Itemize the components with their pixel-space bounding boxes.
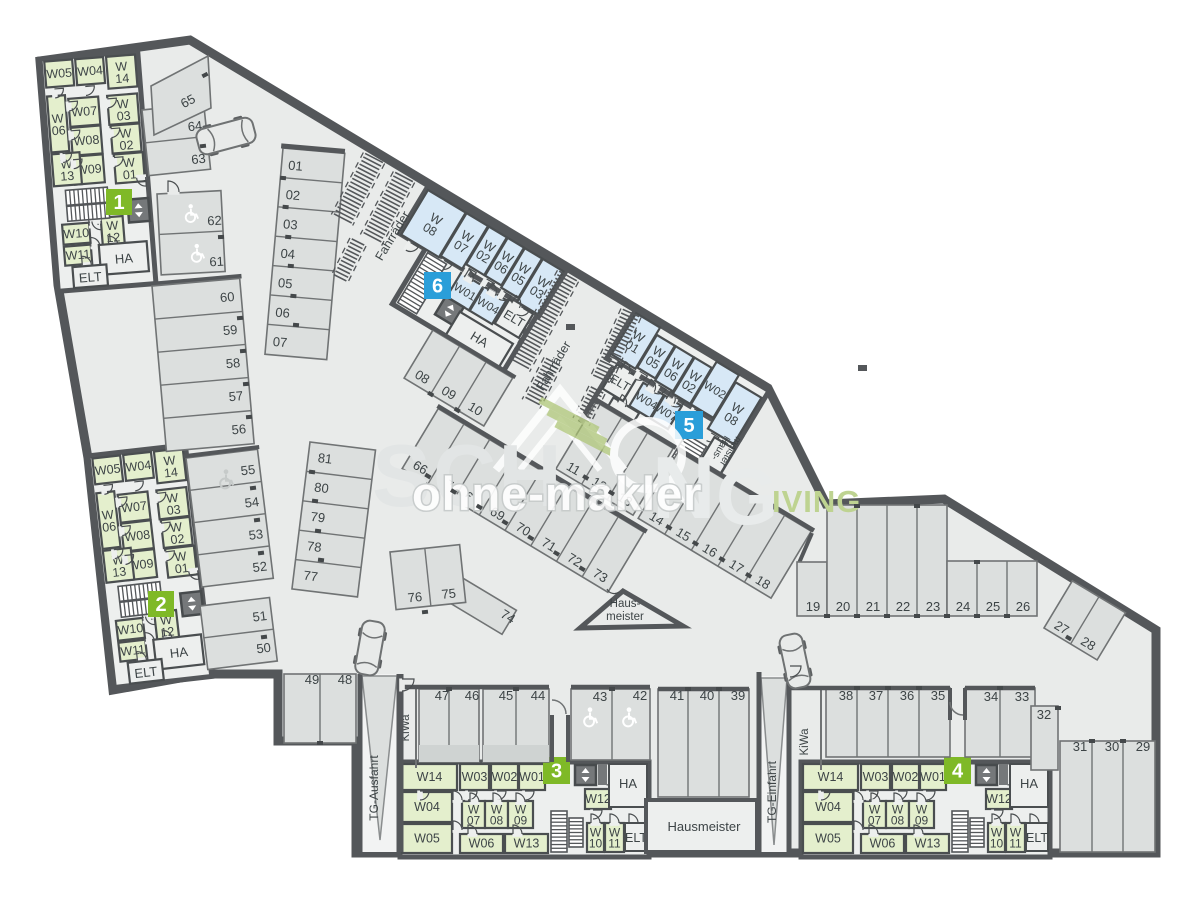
svg-text:W08: W08	[73, 133, 100, 149]
svg-text:HA: HA	[169, 644, 189, 661]
svg-text:52: 52	[252, 558, 268, 575]
svg-text:75: 75	[441, 585, 457, 601]
svg-text:22: 22	[896, 599, 910, 614]
svg-text:W02: W02	[492, 770, 518, 784]
svg-text:14: 14	[115, 71, 130, 86]
svg-text:57: 57	[228, 388, 244, 404]
svg-text:46: 46	[465, 688, 479, 703]
svg-text:45: 45	[499, 688, 513, 703]
svg-text:5: 5	[683, 415, 694, 437]
svg-text:1: 1	[113, 192, 124, 214]
svg-text:81: 81	[317, 450, 333, 467]
svg-text:03: 03	[116, 109, 131, 124]
svg-text:W13: W13	[514, 837, 540, 851]
svg-text:W11: W11	[65, 247, 91, 263]
svg-text:43: 43	[593, 689, 607, 704]
svg-text:Haus-: Haus-	[610, 598, 641, 610]
svg-text:W10: W10	[63, 226, 90, 242]
svg-text:61: 61	[209, 254, 224, 270]
svg-text:20: 20	[836, 599, 850, 614]
svg-text:W05: W05	[94, 461, 121, 478]
svg-text:3: 3	[551, 761, 562, 783]
svg-text:W13: W13	[915, 837, 941, 851]
svg-text:59: 59	[222, 322, 238, 338]
svg-text:31: 31	[1073, 739, 1087, 754]
svg-text:10: 10	[589, 837, 603, 851]
svg-text:14: 14	[163, 465, 178, 480]
svg-text:W03: W03	[863, 770, 889, 784]
svg-text:10: 10	[990, 837, 1004, 851]
svg-text:24: 24	[956, 599, 970, 614]
svg-text:54: 54	[244, 494, 260, 511]
svg-text:03: 03	[283, 216, 299, 232]
svg-text:01: 01	[122, 167, 137, 182]
svg-text:76: 76	[407, 589, 423, 605]
svg-text:W10: W10	[117, 621, 144, 638]
svg-text:11: 11	[608, 837, 621, 851]
svg-text:34: 34	[984, 689, 998, 704]
svg-text:W06: W06	[469, 837, 495, 851]
svg-text:60: 60	[219, 289, 235, 305]
svg-text:W12: W12	[585, 792, 611, 806]
svg-text:03: 03	[166, 502, 181, 517]
svg-text:6: 6	[432, 276, 443, 298]
svg-text:HA: HA	[1020, 776, 1038, 791]
svg-text:56: 56	[231, 421, 247, 437]
svg-text:W14: W14	[818, 770, 844, 784]
svg-text:W05: W05	[46, 66, 73, 82]
svg-text:80: 80	[313, 480, 329, 497]
svg-text:08: 08	[891, 814, 905, 828]
svg-text:78: 78	[306, 538, 322, 555]
svg-text:13: 13	[112, 564, 127, 579]
svg-text:W11: W11	[120, 642, 146, 659]
svg-text:51: 51	[252, 608, 268, 625]
svg-text:G: G	[716, 452, 778, 541]
svg-text:77: 77	[303, 568, 319, 585]
svg-text:W07: W07	[121, 499, 148, 516]
svg-text:W05: W05	[414, 832, 440, 846]
svg-text:W04: W04	[125, 458, 152, 475]
svg-text:06: 06	[51, 123, 66, 138]
svg-text:W05: W05	[815, 832, 841, 846]
svg-text:06: 06	[275, 304, 291, 320]
svg-text:W04: W04	[414, 800, 440, 814]
svg-text:32: 32	[1037, 707, 1051, 722]
svg-text:ELT: ELT	[78, 269, 102, 286]
svg-text:04: 04	[280, 246, 296, 262]
svg-text:44: 44	[531, 688, 545, 703]
svg-text:W06: W06	[870, 837, 896, 851]
svg-text:79: 79	[310, 509, 326, 526]
svg-text:05: 05	[277, 275, 293, 291]
svg-text:48: 48	[338, 672, 352, 687]
svg-text:2: 2	[155, 594, 166, 616]
svg-text:62: 62	[207, 213, 222, 229]
svg-text:W04: W04	[77, 63, 104, 79]
svg-text:02: 02	[285, 187, 301, 203]
svg-text:TG-Ausfahrt: TG-Ausfahrt	[367, 755, 381, 821]
svg-text:Hausmeister: Hausmeister	[668, 819, 742, 834]
svg-text:08: 08	[490, 814, 504, 828]
svg-text:HA: HA	[114, 250, 134, 266]
svg-text:49: 49	[305, 672, 319, 687]
svg-text:TG-Einfahrt: TG-Einfahrt	[765, 760, 779, 823]
svg-text:21: 21	[866, 599, 880, 614]
svg-text:ELT: ELT	[1026, 831, 1048, 845]
svg-text:W08: W08	[124, 528, 151, 545]
svg-text:11: 11	[1009, 837, 1022, 851]
svg-text:W14: W14	[417, 770, 443, 784]
svg-text:55: 55	[240, 462, 256, 479]
svg-text:33: 33	[1015, 689, 1029, 704]
svg-text:W04: W04	[815, 800, 841, 814]
svg-text:50: 50	[256, 640, 272, 657]
svg-text:25: 25	[986, 599, 1000, 614]
svg-text:30: 30	[1105, 739, 1119, 754]
svg-text:HA: HA	[619, 776, 637, 791]
svg-text:ELT: ELT	[134, 664, 158, 682]
svg-text:26: 26	[1016, 599, 1030, 614]
svg-text:29: 29	[1136, 739, 1150, 754]
svg-text:W12: W12	[986, 792, 1012, 806]
svg-text:W01: W01	[519, 770, 545, 784]
svg-text:4: 4	[952, 761, 964, 783]
svg-text:W07: W07	[71, 104, 98, 120]
svg-text:42: 42	[633, 688, 647, 703]
svg-text:W02: W02	[893, 770, 919, 784]
svg-text:meister: meister	[606, 611, 644, 623]
svg-text:53: 53	[248, 526, 264, 543]
svg-text:07: 07	[272, 334, 288, 350]
svg-text:02: 02	[170, 532, 185, 547]
svg-text:IVING: IVING	[772, 484, 861, 519]
svg-text:02: 02	[119, 138, 134, 153]
svg-text:19: 19	[806, 599, 820, 614]
svg-text:06: 06	[101, 519, 116, 534]
svg-text:01: 01	[174, 561, 189, 576]
svg-text:W03: W03	[462, 770, 488, 784]
svg-text:01: 01	[288, 158, 304, 174]
svg-text:W01: W01	[920, 770, 946, 784]
svg-text:23: 23	[926, 599, 940, 614]
svg-text:58: 58	[225, 355, 241, 371]
svg-text:13: 13	[60, 169, 75, 184]
svg-text:KiWa: KiWa	[799, 728, 811, 756]
